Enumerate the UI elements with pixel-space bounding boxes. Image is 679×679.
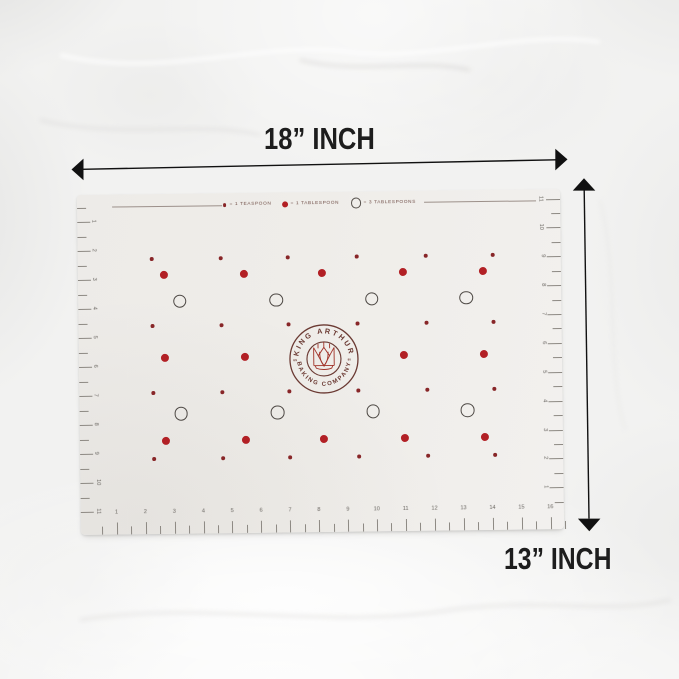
svg-text:90: 90: [347, 357, 351, 361]
svg-text:KING ARTHUR: KING ARTHUR: [291, 325, 356, 356]
svg-text:ES: ES: [293, 358, 297, 362]
svg-text:BAKING COMPANY: BAKING COMPANY: [295, 360, 353, 388]
